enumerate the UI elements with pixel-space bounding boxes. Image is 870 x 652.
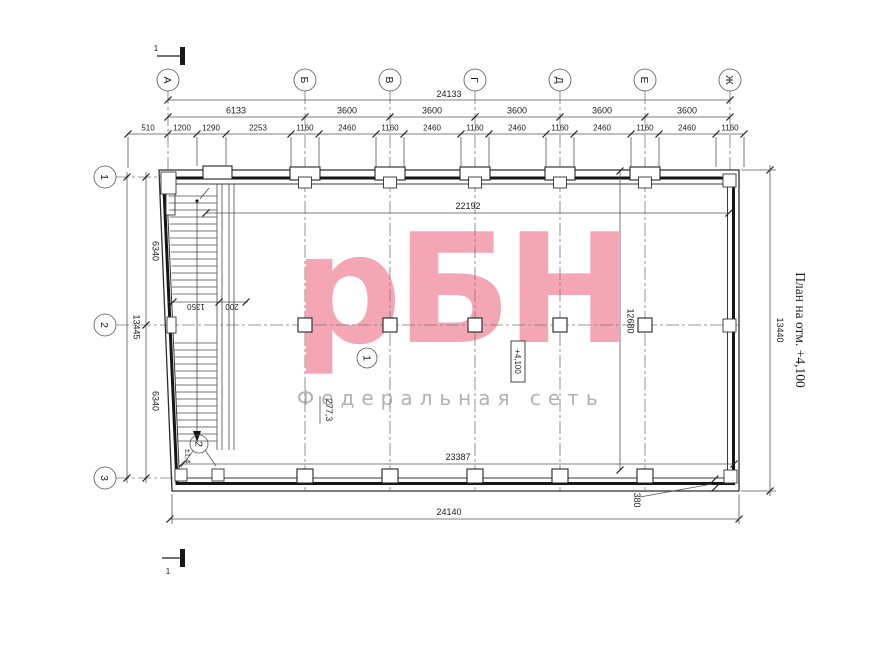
dim-span-v-g: 3600	[422, 106, 442, 116]
floor-plan-canvas: рБН Федеральная сеть	[0, 0, 870, 652]
dim-mid-vertical: 12680	[626, 308, 636, 333]
stair-direction-arrow	[193, 188, 209, 442]
dim-span-e-zh: 3600	[677, 106, 697, 116]
dim-detail-2: 1290	[202, 124, 220, 133]
dim-bottom-total: 24140	[436, 507, 461, 517]
room-number-marker: 1	[357, 348, 377, 368]
staircase	[169, 184, 235, 450]
dim-stair-gap: 200	[225, 302, 239, 311]
dim-detail-4: 1160	[296, 124, 314, 133]
columns-and-pilasters	[161, 166, 737, 483]
svg-text:+4,100: +4,100	[513, 349, 522, 374]
floor-plan-drawing: 24133 6133 3600 3600 3600 3600 3600 510 …	[0, 0, 870, 652]
svg-text:Д: Д	[553, 76, 565, 83]
svg-text:Г: Г	[468, 77, 480, 83]
svg-text:277,3: 277,3	[324, 399, 334, 422]
dim-detail-3: 2253	[249, 124, 267, 133]
plan-side-title: План на отм. +4,100	[793, 272, 808, 388]
svg-text:1: 1	[360, 355, 372, 361]
dim-span-b-v: 3600	[337, 106, 357, 116]
svg-text:Ж: Ж	[723, 75, 735, 85]
dim-detail-9: 2460	[508, 124, 526, 133]
dim-left-span-2: 6340	[151, 391, 161, 411]
section-mark-bottom: 1	[162, 549, 185, 576]
svg-text:2: 2	[98, 322, 110, 328]
svg-text:А: А	[161, 76, 173, 83]
axis-circle-g: Г	[464, 69, 486, 91]
dim-detail-13: 2460	[678, 124, 696, 133]
svg-text:1: 1	[154, 44, 159, 53]
row-circle-3: 3	[94, 467, 116, 489]
dim-detail-5: 2460	[338, 124, 356, 133]
dim-detail-1: 1200	[173, 124, 191, 133]
stair-elevation-label: ±1,4	[184, 449, 193, 464]
dim-span-d-e: 3600	[592, 106, 612, 116]
dim-left-total: 13445	[132, 314, 142, 339]
row-circle-1: 1	[94, 166, 116, 188]
dim-span-a-b: 6133	[226, 106, 246, 116]
section-mark-top: 1	[154, 44, 185, 65]
svg-text:1: 1	[166, 567, 171, 576]
axis-circle-a: А	[157, 69, 179, 91]
svg-text:1: 1	[98, 174, 110, 180]
dim-detail-12: 1160	[636, 124, 654, 133]
svg-text:Е: Е	[638, 76, 650, 83]
floor-elevation-box: +4,100	[511, 341, 525, 382]
dim-detail-10: 1160	[551, 124, 569, 133]
dim-detail-6: 1160	[381, 124, 399, 133]
dim-wall-offset: 380	[632, 492, 642, 507]
dim-top-total: 24133	[436, 89, 461, 99]
axis-circle-d: Д	[549, 69, 571, 91]
room-area-label: 277,3	[320, 396, 334, 424]
svg-text:Б: Б	[298, 77, 310, 84]
dim-bottom-interior: 23387	[445, 452, 470, 462]
dim-detail-11: 2460	[593, 124, 611, 133]
svg-text:2: 2	[192, 441, 204, 447]
svg-text:3: 3	[98, 475, 110, 481]
dim-stair-flight: 1350	[187, 302, 205, 311]
axis-circle-b: Б	[294, 69, 316, 91]
dim-detail-14: 1160	[721, 124, 739, 133]
dim-right-total: 13440	[775, 317, 785, 342]
dim-span-g-d: 3600	[507, 106, 527, 116]
axis-circle-v: В	[379, 69, 401, 91]
axis-grid-lines	[116, 91, 738, 490]
axis-circle-zh: Ж	[719, 69, 741, 91]
svg-text:В: В	[383, 76, 395, 83]
dimension-texts: 24133 6133 3600 3600 3600 3600 3600 510 …	[132, 89, 786, 517]
dim-detail-7: 2460	[423, 124, 441, 133]
dim-top-interior: 22192	[455, 201, 480, 211]
dim-left-span-1: 6340	[151, 241, 161, 261]
axis-circle-e: Е	[634, 69, 656, 91]
dim-detail-0: 510	[141, 124, 155, 133]
row-circle-2: 2	[94, 314, 116, 336]
dim-detail-8: 1160	[466, 124, 484, 133]
